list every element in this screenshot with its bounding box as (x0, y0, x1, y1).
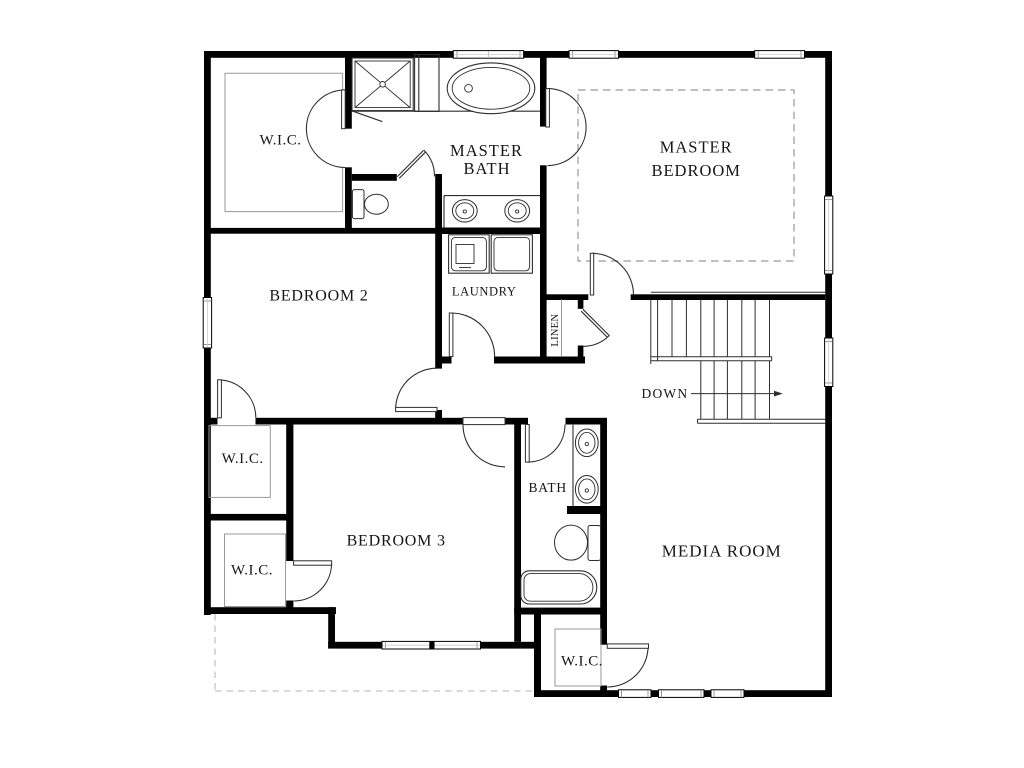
svg-text:W.I.C.: W.I.C. (561, 653, 603, 669)
svg-text:LINEN: LINEN (550, 314, 561, 347)
svg-text:MASTER: MASTER (450, 141, 523, 160)
svg-text:BEDROOM: BEDROOM (651, 161, 741, 180)
svg-text:W.I.C.: W.I.C. (222, 451, 264, 467)
svg-text:DOWN: DOWN (642, 386, 689, 401)
svg-text:BATH: BATH (528, 480, 566, 495)
svg-text:BEDROOM 2: BEDROOM 2 (269, 287, 368, 304)
svg-text:BEDROOM 3: BEDROOM 3 (347, 533, 446, 550)
svg-text:W.I.C.: W.I.C. (259, 132, 301, 148)
svg-text:MASTER: MASTER (660, 138, 733, 157)
svg-text:LAUNDRY: LAUNDRY (452, 285, 517, 299)
svg-text:BATH: BATH (463, 159, 510, 178)
svg-text:MEDIA ROOM: MEDIA ROOM (662, 541, 782, 560)
svg-text:W.I.C.: W.I.C. (231, 563, 273, 579)
